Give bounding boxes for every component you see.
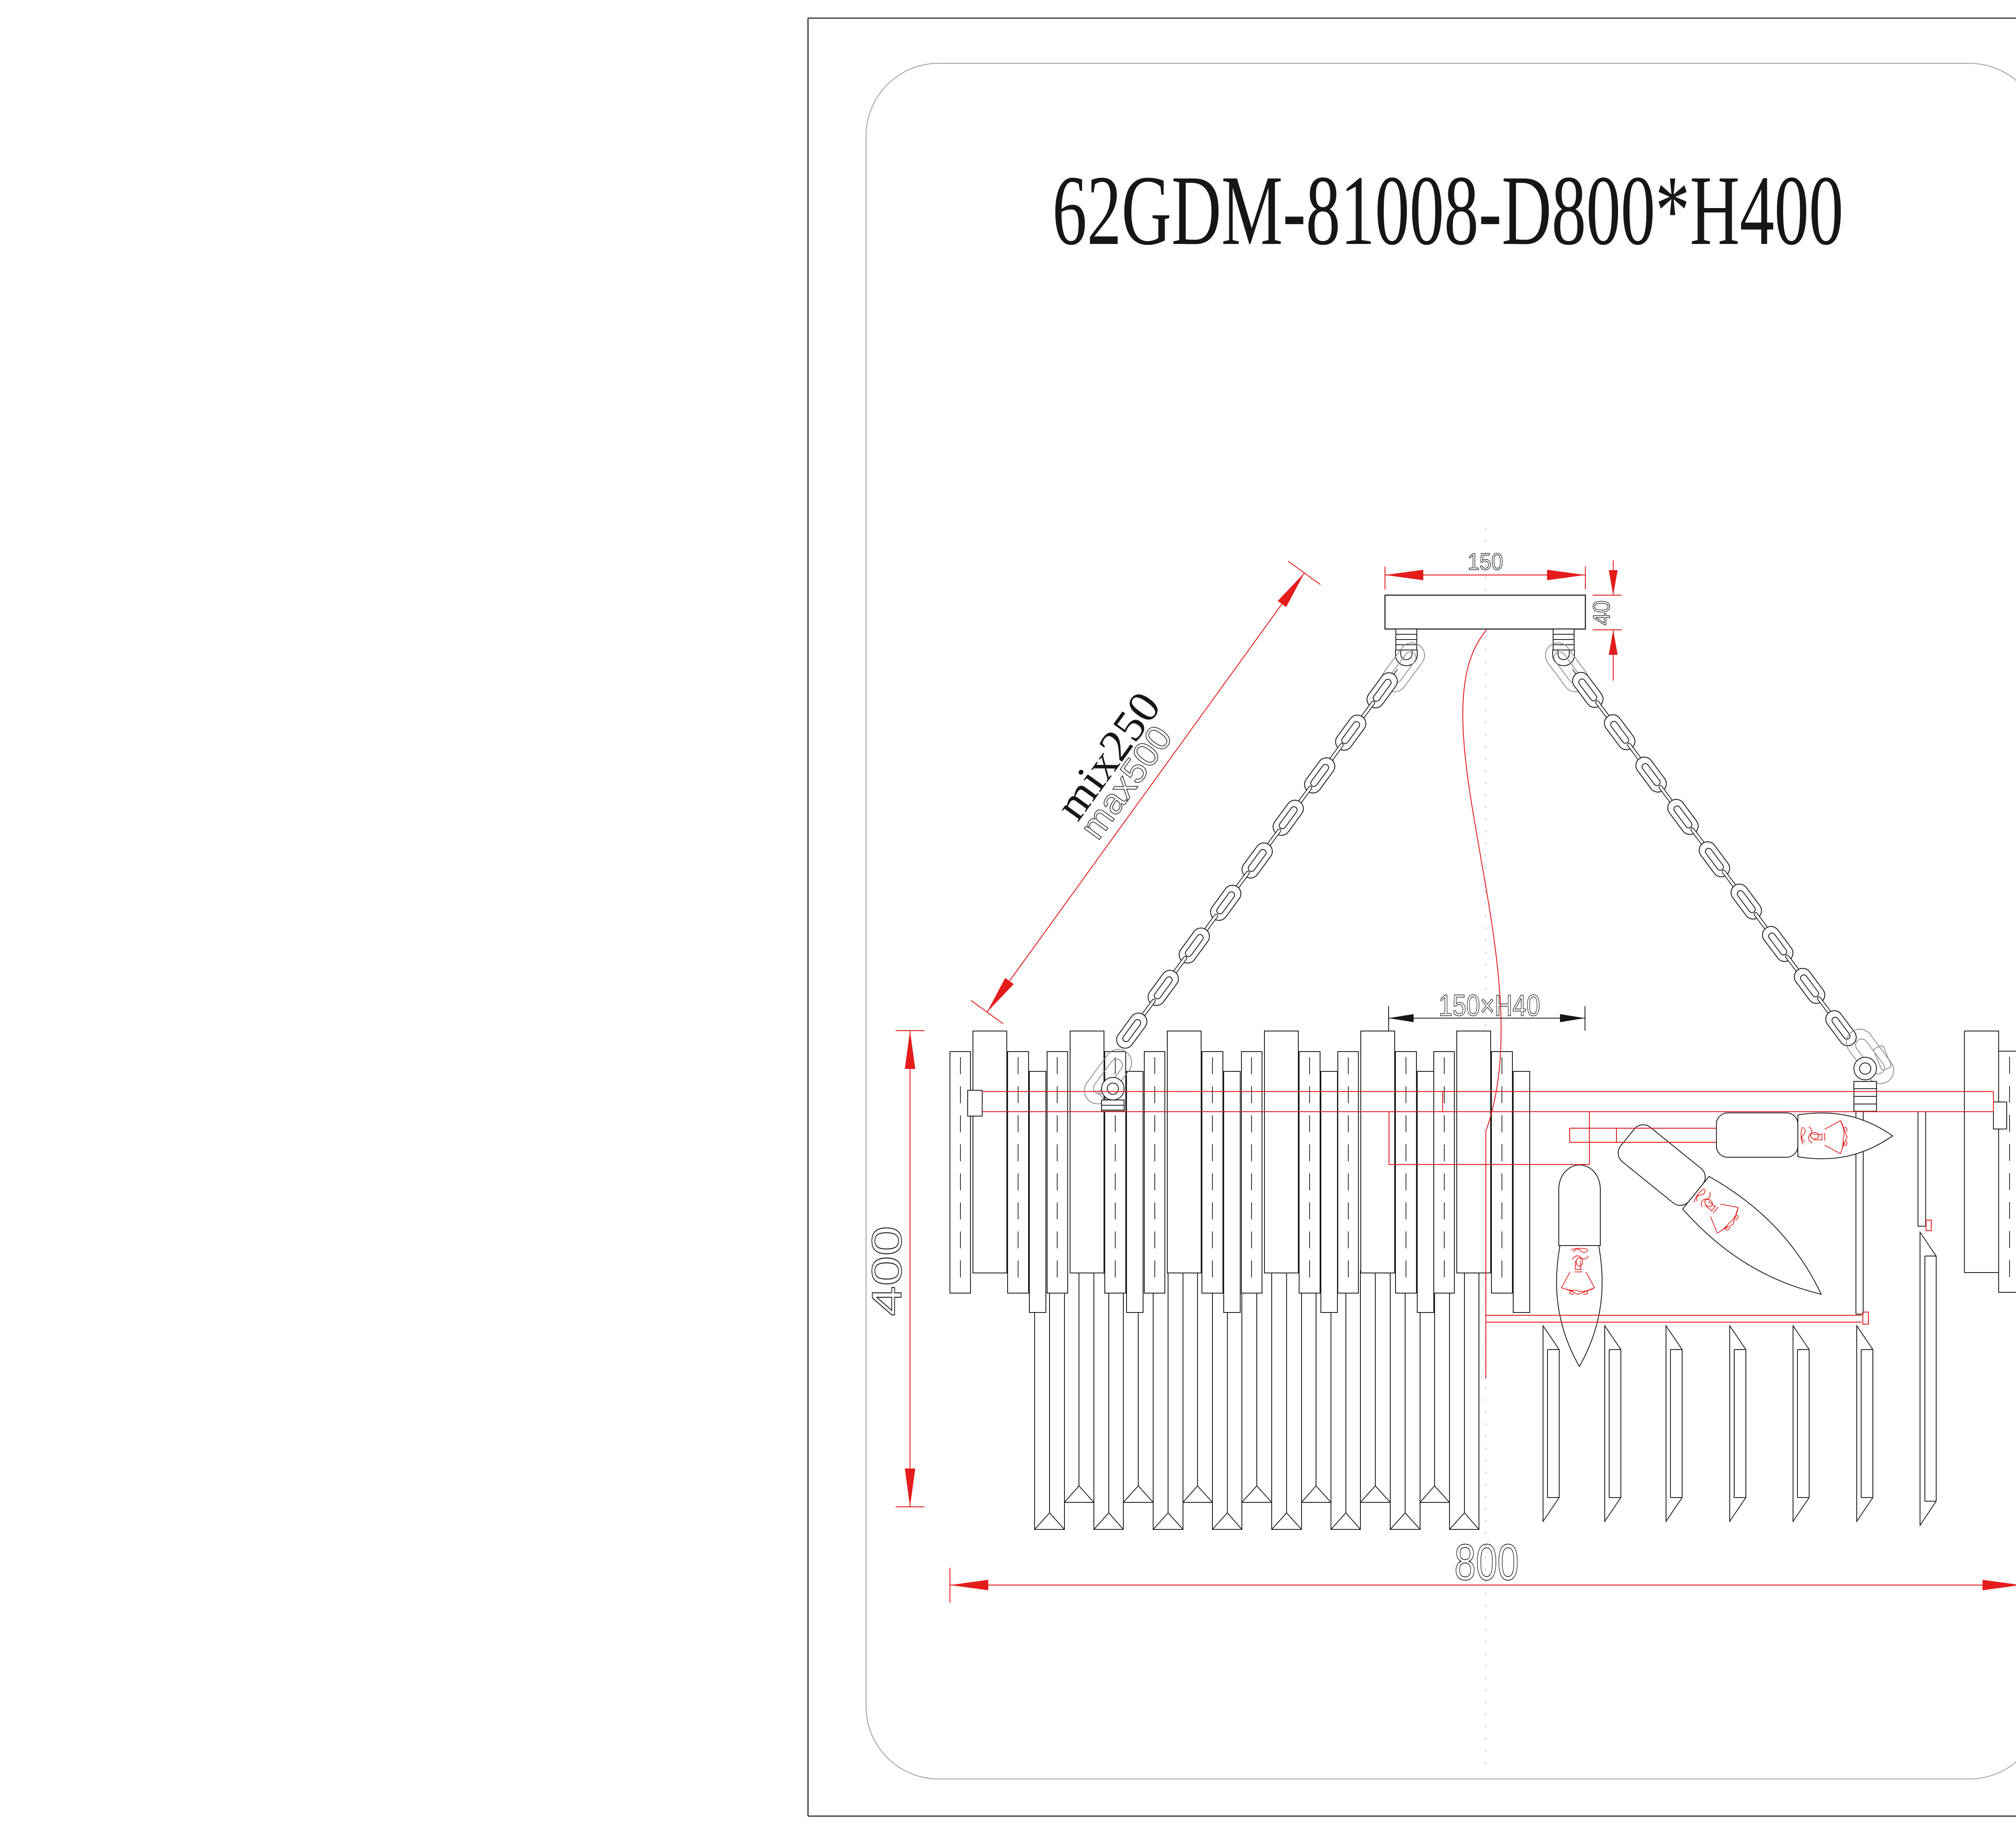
svg-text:150: 150: [1468, 549, 1503, 575]
svg-text:62GDM-81008-D800*H400: 62GDM-81008-D800*H400: [1052, 155, 1843, 266]
svg-text:40: 40: [1589, 600, 1615, 625]
svg-text:150×H40: 150×H40: [1439, 989, 1540, 1022]
svg-text:400: 400: [864, 1226, 910, 1316]
svg-text:800: 800: [1454, 1534, 1519, 1591]
